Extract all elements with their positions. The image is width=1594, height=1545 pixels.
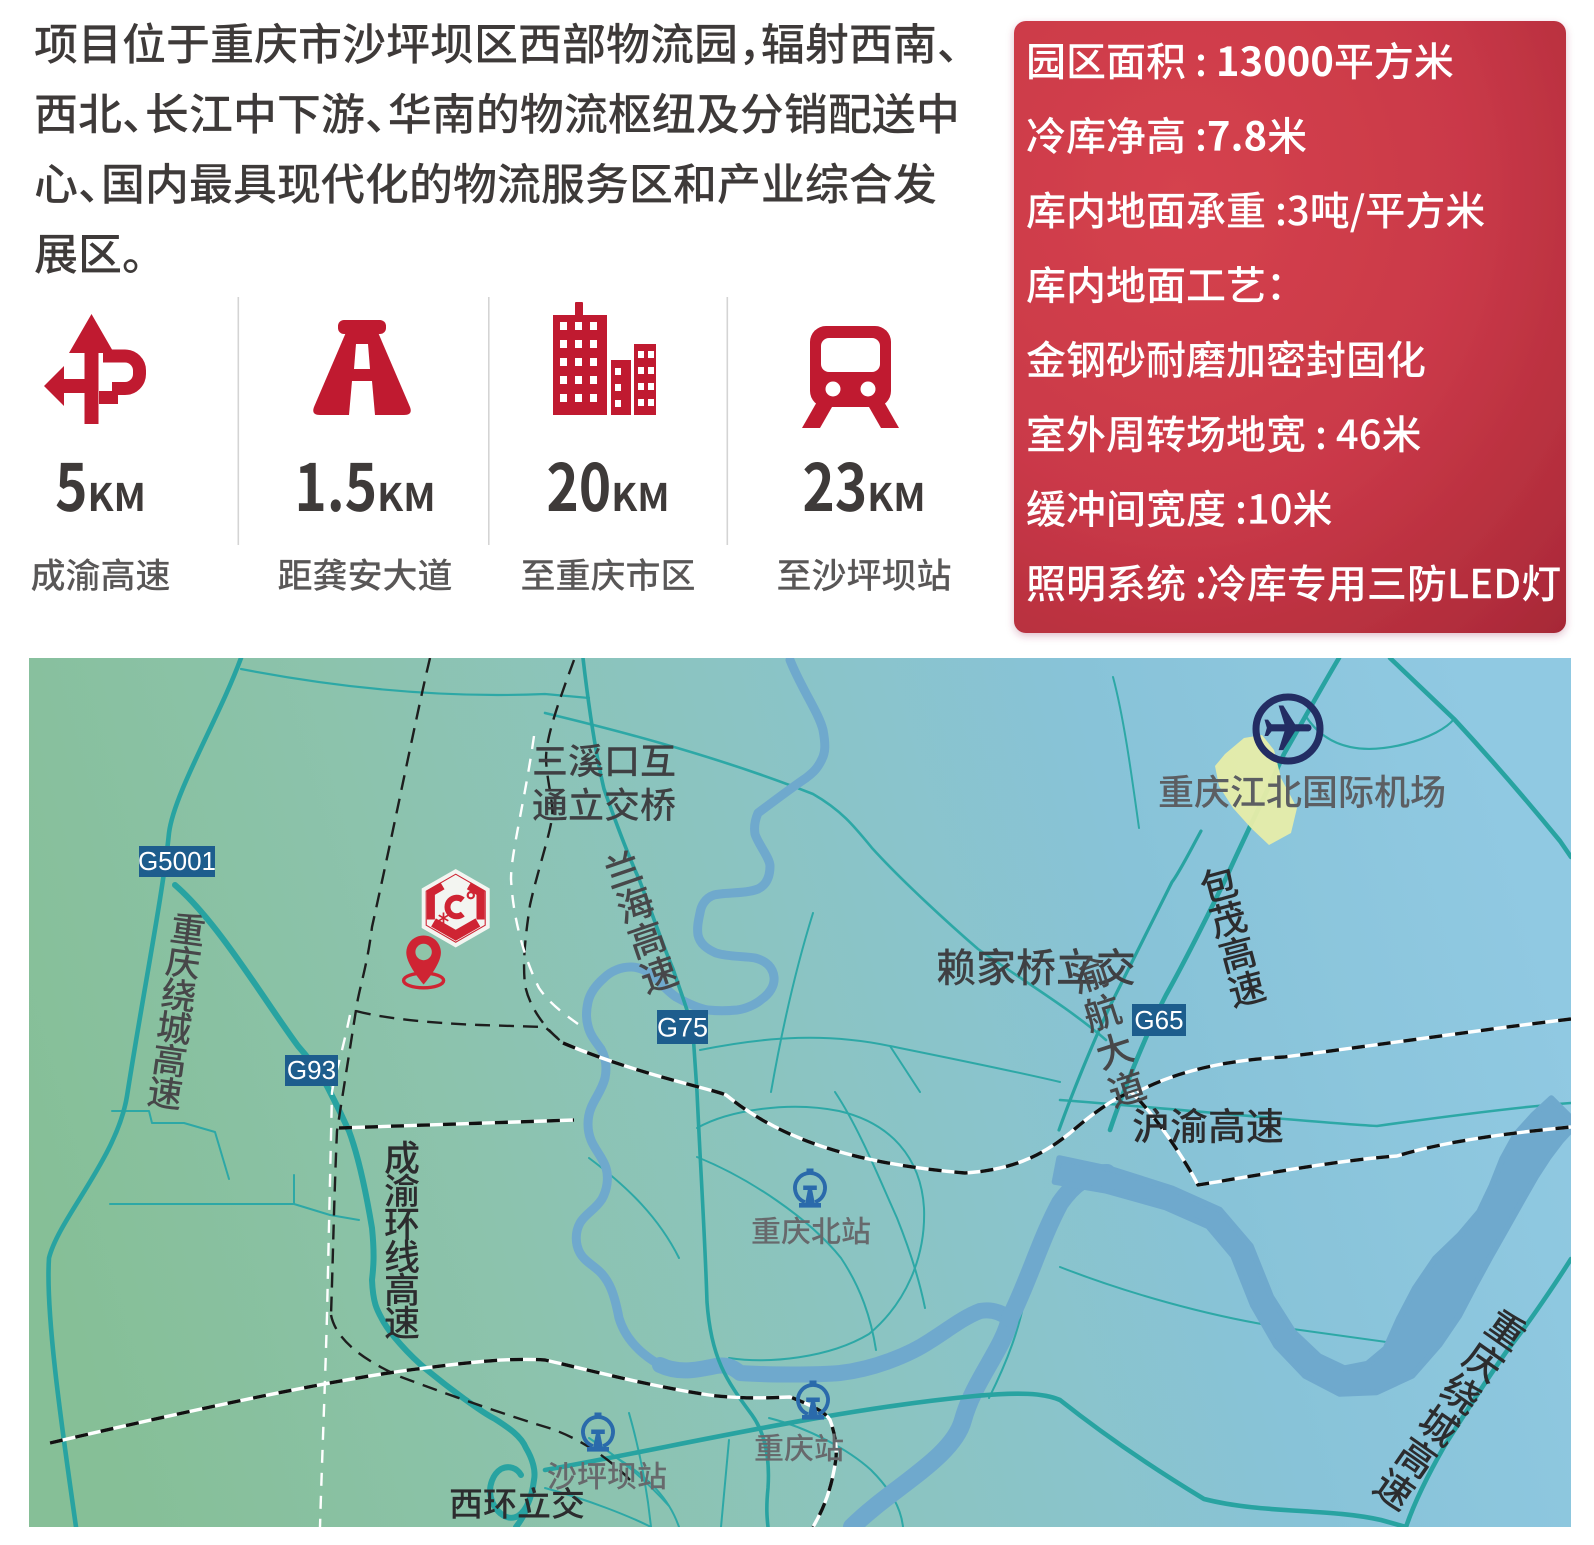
svg-text:G75: G75 (657, 1013, 708, 1043)
svg-text:G65: G65 (1134, 1005, 1183, 1035)
svg-text:G5001: G5001 (138, 846, 216, 876)
svg-text:G93: G93 (287, 1055, 336, 1085)
